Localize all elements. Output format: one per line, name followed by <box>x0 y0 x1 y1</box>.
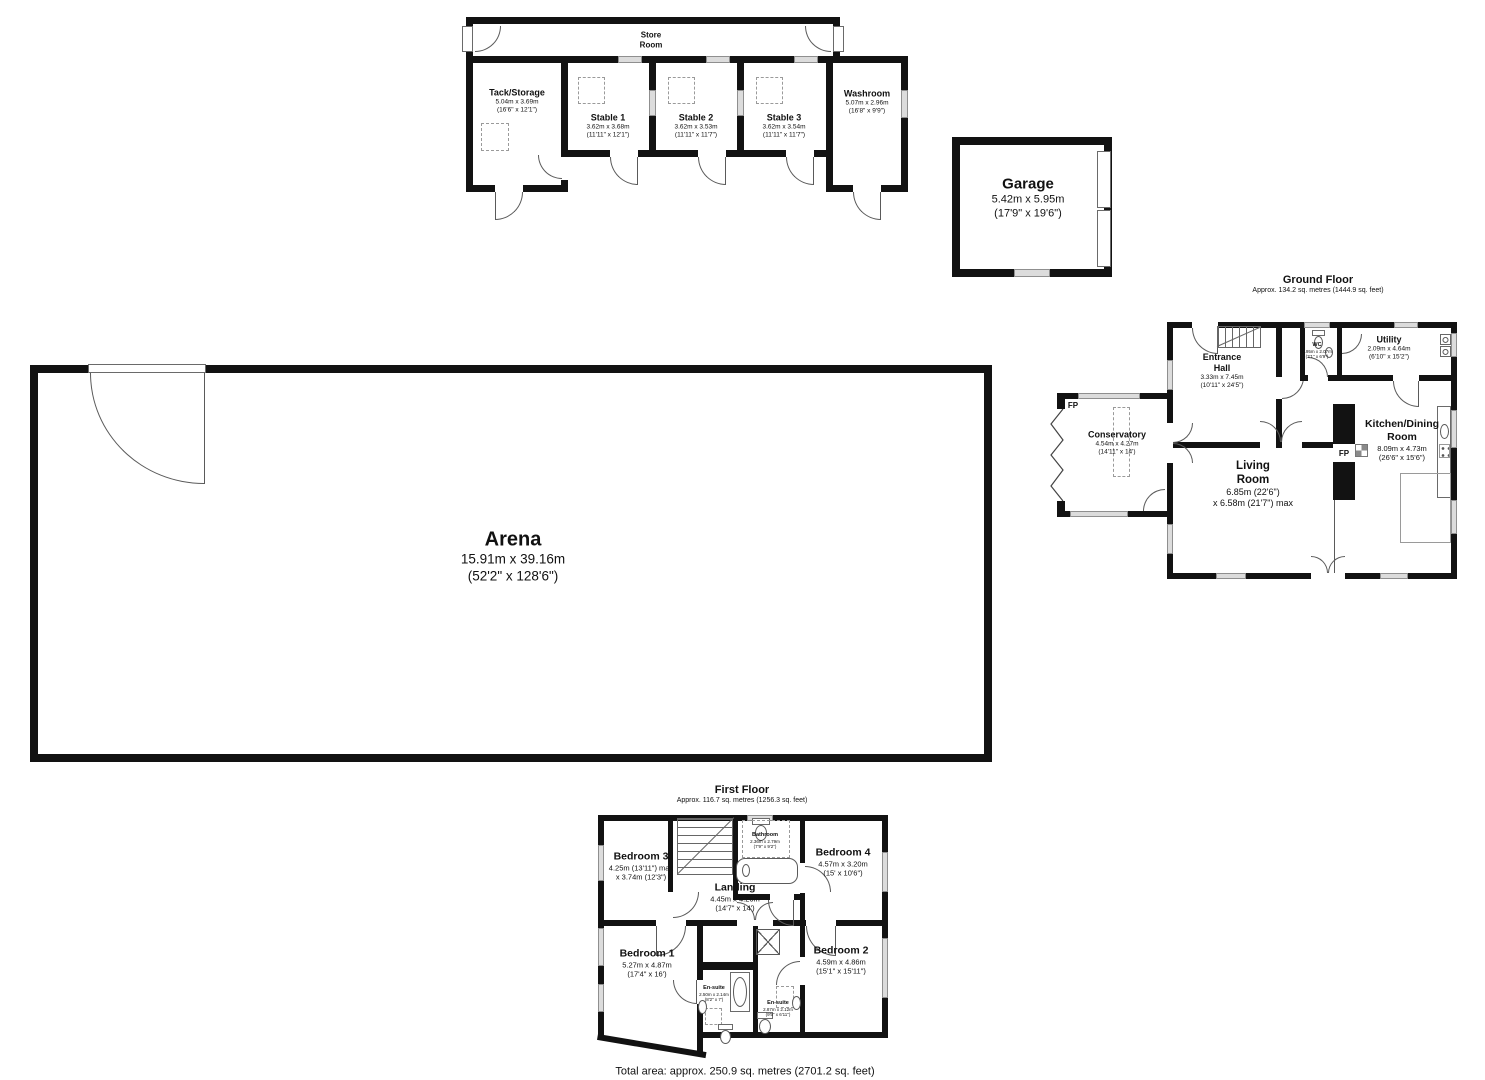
wall-segment <box>833 56 908 63</box>
room-label-tack-storage: Tack/Storage5.04m x 3.69m(16'6" x 12'1") <box>489 88 545 115</box>
room-name: Bathroom <box>750 832 780 839</box>
door-leaf <box>204 373 205 484</box>
room-dims-metric: 3.62m x 3.53m <box>675 124 718 132</box>
room-dims-metric: 4.59m x 4.86m <box>814 957 869 966</box>
floor-subtitle: Approx. 134.2 sq. metres (1444.9 sq. fee… <box>1252 287 1383 296</box>
door-arc <box>610 157 638 185</box>
room-label-garage: Garage5.42m x 5.95m(17'9" x 19'6") <box>992 175 1065 220</box>
room-dims-imperial: (26'6" x 15'6") <box>1365 453 1439 462</box>
room-label-stable3: Stable 33.62m x 3.54m(11'11" x 11'7") <box>763 113 806 140</box>
window <box>598 984 604 1012</box>
wall-segment <box>952 137 960 277</box>
wall-segment <box>1057 501 1065 517</box>
floor-title-first: First FloorApprox. 116.7 sq. metres (125… <box>677 784 808 806</box>
room-dims-imperial: (15'1" x 15'11") <box>814 966 869 975</box>
door-arc <box>1173 423 1193 443</box>
window <box>737 90 744 116</box>
room-label-utility: Utility2.09m x 4.64m(6'10" x 15'2") <box>1368 335 1411 362</box>
toilet-icon <box>720 1030 731 1044</box>
room-label-bathroom: Bathroom2.36m x 2.79m(7'9" x 9'2") <box>750 832 780 850</box>
room-dims-imperial: (9'5" x 6'11") <box>763 1012 793 1017</box>
wall-segment <box>561 150 610 157</box>
window <box>1167 524 1173 554</box>
room-dims-metric: 4.57m x 3.20m <box>816 859 871 868</box>
window <box>649 90 656 116</box>
dashed-unit <box>481 123 509 151</box>
room-name: Stable 2 <box>675 113 718 124</box>
door <box>88 364 206 373</box>
room-label-bedroom1: Bedroom 15.27m x 4.87m(17'4" x 16') <box>620 947 675 978</box>
door-arc <box>1311 556 1328 573</box>
wall-segment <box>952 137 1112 145</box>
room-name: Bedroom 1 <box>620 947 675 960</box>
room-dims-imperial: (17'4" x 16') <box>620 969 675 978</box>
window <box>1394 322 1418 328</box>
room-dims-imperial: (14'7" x 14') <box>710 903 760 912</box>
room-dims-metric: 5.42m x 5.95m <box>992 194 1065 207</box>
room-label-landing: Landing4.45m x 4.26m(14'7" x 14') <box>710 881 760 912</box>
wall-segment <box>826 63 833 192</box>
wall-segment <box>597 1034 706 1058</box>
window <box>1451 410 1457 448</box>
door-arc <box>475 26 501 52</box>
wall-segment <box>1419 375 1457 381</box>
dashed-unit <box>578 77 605 104</box>
room-dims-metric: 6.85m (22'6") <box>1213 487 1293 498</box>
wall-segment <box>1300 375 1308 381</box>
room-label-conservatory: Conservatory4.54m x 4.27m(14'11" x 14') <box>1088 430 1146 457</box>
wall-segment <box>638 150 698 157</box>
window <box>1304 322 1330 328</box>
wall-segment <box>1302 442 1333 448</box>
wall-segment <box>800 893 805 926</box>
window <box>1014 269 1050 277</box>
wall-segment <box>30 365 38 762</box>
room-name: Arena <box>461 527 565 551</box>
shower-icon <box>756 929 780 955</box>
room-dims-metric: 3.62m x 3.54m <box>763 124 806 132</box>
room-dims-metric: 4.45m x 4.26m <box>710 894 760 903</box>
wall-segment <box>30 754 992 762</box>
room-name: Store Room <box>640 30 663 50</box>
wall-segment <box>882 815 888 1038</box>
door-arc <box>495 192 523 220</box>
room-dims-metric: 4.54m x 4.27m <box>1088 441 1146 449</box>
wall-segment <box>697 926 703 980</box>
door-leaf <box>637 157 638 185</box>
wall-segment <box>686 920 737 926</box>
room-name: Conservatory <box>1088 430 1146 441</box>
room-name: Living Room <box>1213 459 1293 487</box>
door-leaf <box>495 192 496 220</box>
garage-door <box>1097 210 1111 267</box>
room-name: Bedroom 2 <box>814 944 869 957</box>
room-dims-imperial: (6'10" x 15'2") <box>1368 353 1411 361</box>
fireplace-label: FP <box>1339 442 1349 462</box>
wall-segment <box>836 920 888 926</box>
wall-segment <box>800 926 805 957</box>
window <box>1451 333 1457 357</box>
room-name: Bedroom 4 <box>816 846 871 859</box>
door-arc <box>1308 357 1328 377</box>
room-dims-metric: 8.09m x 4.73m <box>1365 444 1439 453</box>
sink-icon <box>1440 424 1449 439</box>
room-dims-metric: 3.62m x 3.68m <box>587 124 630 132</box>
wall-segment <box>984 365 992 762</box>
room-dims-metric: 5.07m x 2.96m <box>844 100 890 108</box>
window <box>1078 393 1140 399</box>
dashed-unit <box>668 77 695 104</box>
room-dims-metric: 5.27m x 4.87m <box>620 960 675 969</box>
window <box>706 56 730 63</box>
window <box>901 90 908 118</box>
wall-segment <box>726 150 786 157</box>
fp-text: FP <box>1339 449 1349 458</box>
toilet-icon <box>759 1019 771 1034</box>
floor-title-ground: Ground FloorApprox. 134.2 sq. metres (14… <box>1252 274 1383 296</box>
room-label-stable1: Stable 13.62m x 3.68m(11'11" x 12'1") <box>587 113 630 140</box>
room-dims-imperial: (11'11" x 11'7") <box>675 131 718 139</box>
wall-segment <box>800 985 805 1032</box>
door-arc <box>805 26 831 52</box>
window <box>598 845 604 881</box>
door-arc <box>1192 328 1218 354</box>
room-name: WC <box>1302 342 1332 349</box>
door-arc <box>698 157 726 185</box>
room-name: Landing <box>710 881 760 894</box>
room-label-bedroom3: Bedroom 34.25m (13'11") maxx 3.74m (12'3… <box>609 850 673 881</box>
wall-segment <box>1057 393 1065 409</box>
floor-title: First Floor <box>677 784 808 797</box>
room-label-bedroom4: Bedroom 44.57m x 3.20m(15' x 10'6") <box>816 846 871 877</box>
room-dims-imperial: (14'11" x 14') <box>1088 448 1146 456</box>
door-leaf <box>880 192 881 220</box>
chimney-block <box>1333 462 1355 500</box>
room-dims-metric: 2.09m x 4.64m <box>1368 346 1411 354</box>
room-dims-imperial: (17'9" x 19'6") <box>992 207 1065 220</box>
door-arc <box>1328 556 1345 573</box>
wall-segment <box>561 180 568 192</box>
door-arc <box>786 157 814 185</box>
room-name: Bedroom 3 <box>609 850 673 863</box>
room-dims-imperial: (11'11" x 11'7") <box>763 131 806 139</box>
room-dims-imperial: (16'6" x 12'1") <box>489 106 545 114</box>
room-name: Stable 3 <box>763 113 806 124</box>
wall-segment <box>1328 375 1393 381</box>
wall-segment <box>30 365 88 373</box>
room-dims-imperial: (3'1" x 6'9") <box>1302 354 1332 359</box>
wall-segment <box>814 150 833 157</box>
shower-tray <box>733 977 747 1007</box>
door-arc <box>673 892 699 918</box>
door-arc <box>853 192 881 220</box>
window <box>1167 360 1173 390</box>
dashed-unit <box>756 77 783 104</box>
folding-doors-icon <box>1048 409 1064 501</box>
wall-segment <box>1167 463 1173 517</box>
room-name: Entrance Hall <box>1200 352 1243 374</box>
door-leaf <box>696 980 697 1004</box>
window <box>882 938 888 998</box>
door-leaf <box>725 157 726 185</box>
door-leaf <box>1418 381 1419 407</box>
wall-segment <box>466 185 495 192</box>
room-name: En-suite <box>763 1000 793 1007</box>
room-label-ensuite2: En-suite2.87m x 2.12m(9'5" x 6'11") <box>763 1000 793 1018</box>
room-name: Washroom <box>844 89 890 100</box>
room-label-kitchen: Kitchen/Dining Room8.09m x 4.73m(26'6" x… <box>1365 418 1439 462</box>
door-arc <box>776 961 800 985</box>
wall-segment <box>1451 322 1457 579</box>
wall-segment <box>1276 328 1282 377</box>
room-label-arena: Arena15.91m x 39.16m(52'2" x 128'6") <box>461 527 565 584</box>
room-name: Tack/Storage <box>489 88 545 99</box>
floorplan-canvas: Store Room Tack/Storage5.04m x 3.69m(16'… <box>0 0 1485 1080</box>
wall-segment <box>881 185 908 192</box>
room-label-wc: WC0.95m x 2.07m(3'1" x 6'9") <box>1302 342 1332 360</box>
room-label-living-room: Living Room6.85m (22'6")x 6.58m (21'7") … <box>1213 459 1293 509</box>
room-dims-metric: 15.91m x 39.16m <box>461 552 565 568</box>
room-dims-imperial: (52'2" x 128'6") <box>461 568 565 584</box>
door-arc <box>1281 421 1302 442</box>
washer-icon <box>1440 334 1451 345</box>
door-arc <box>90 373 204 484</box>
door-arc <box>673 980 697 1004</box>
room-name: Stable 1 <box>587 113 630 124</box>
door-arc <box>538 155 562 179</box>
wall-segment <box>561 63 568 155</box>
wall-segment <box>466 56 833 63</box>
window <box>1380 573 1408 579</box>
room-name: En-suite <box>699 985 729 992</box>
door-arc <box>1393 381 1419 407</box>
window <box>794 56 818 63</box>
wall-segment <box>794 894 800 900</box>
room-dims-imperial: (8'2" x 7') <box>699 997 729 1002</box>
dashed-unit <box>705 1008 722 1025</box>
room-label-ensuite1: En-suite2.50m x 2.14m(8'2" x 7') <box>699 985 729 1003</box>
room-dims-imperial: (16'8" x 9'9") <box>844 107 890 115</box>
door <box>833 26 844 52</box>
door-arc <box>1143 489 1165 511</box>
wall-segment <box>901 56 908 192</box>
room-dims-imperial: (15' x 10'6") <box>816 868 871 877</box>
room-dims-metric: 4.25m (13'11") max <box>609 863 673 872</box>
wall-segment <box>206 365 992 373</box>
room-dims-metric: 5.04m x 3.69m <box>489 99 545 107</box>
room-name: Garage <box>992 175 1065 193</box>
wall-segment <box>826 185 853 192</box>
room-label-stable2: Stable 23.62m x 3.53m(11'11" x 11'7") <box>675 113 718 140</box>
chimney-block <box>1333 404 1355 444</box>
window <box>1070 511 1128 517</box>
wall-segment <box>466 17 840 24</box>
door-arc <box>1342 334 1362 354</box>
room-name: Kitchen/Dining Room <box>1365 418 1439 444</box>
room-dims-imperial: x 6.58m (21'7") max <box>1213 498 1293 509</box>
window <box>598 928 604 966</box>
door <box>462 26 473 52</box>
room-label-store-room: Store Room <box>640 30 663 50</box>
hob-icon <box>1439 444 1450 458</box>
fireplace-label: FP <box>1068 394 1078 414</box>
total-area-note: Total area: approx. 250.9 sq. metres (27… <box>615 1065 874 1078</box>
floor-title: Ground Floor <box>1252 274 1383 287</box>
door-leaf <box>793 900 794 926</box>
room-dims-imperial: x 3.74m (12'3") <box>609 872 673 881</box>
fp-text: FP <box>1068 401 1078 410</box>
window <box>882 852 888 892</box>
floor-subtitle: Approx. 116.7 sq. metres (1256.3 sq. fee… <box>677 797 808 806</box>
room-dims-imperial: (7'9" x 9'2") <box>750 844 780 849</box>
counter <box>1400 473 1451 543</box>
bathtub-drain <box>742 864 750 877</box>
room-label-washroom: Washroom5.07m x 2.96m(16'8" x 9'9") <box>844 89 890 116</box>
room-dims-imperial: (10'11" x 24'5") <box>1200 382 1243 390</box>
wall-segment <box>1167 393 1173 423</box>
sink-icon <box>792 996 801 1010</box>
wall-segment <box>598 920 656 926</box>
room-dims-metric: 3.33m x 7.45m <box>1200 374 1243 382</box>
wall-segment <box>703 962 753 970</box>
garage-door <box>1097 151 1111 208</box>
wall-segment <box>800 815 805 863</box>
door-leaf <box>813 157 814 185</box>
window <box>1216 573 1246 579</box>
washer-icon <box>1440 346 1451 357</box>
room-label-bedroom2: Bedroom 24.59m x 4.86m(15'1" x 15'11") <box>814 944 869 975</box>
room-label-entrance-hall: Entrance Hall3.33m x 7.45m(10'11" x 24'5… <box>1200 352 1243 390</box>
room-name: Utility <box>1368 335 1411 346</box>
room-dims-imperial: (11'11" x 12'1") <box>587 131 630 139</box>
window <box>618 56 642 63</box>
window <box>1451 500 1457 534</box>
